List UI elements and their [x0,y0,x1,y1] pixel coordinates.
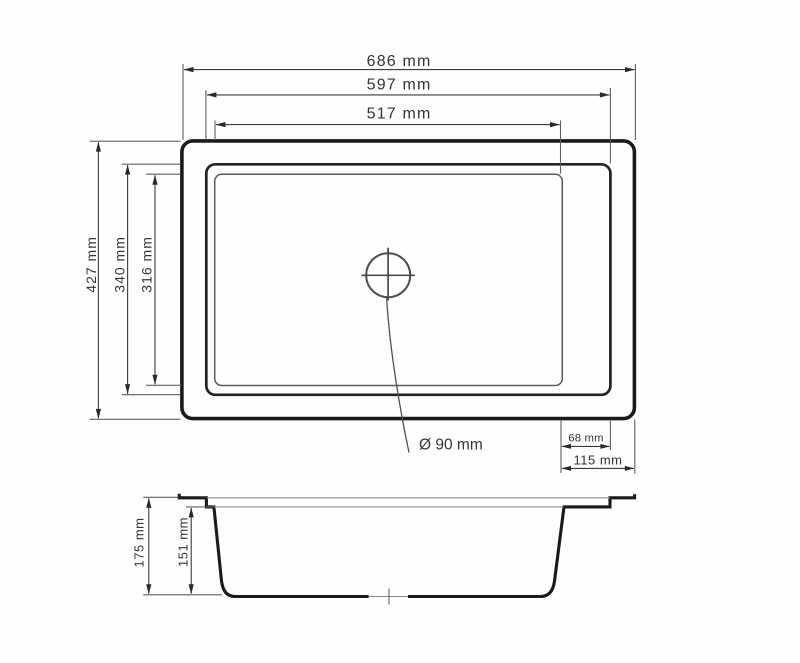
svg-text:597 mm: 597 mm [367,77,432,94]
svg-text:340 mm: 340 mm [111,236,127,293]
svg-text:686 mm: 686 mm [367,53,432,70]
svg-text:517 mm: 517 mm [367,106,432,123]
svg-text:175 mm: 175 mm [131,518,146,568]
svg-text:151 mm: 151 mm [176,517,191,567]
svg-text:316 mm: 316 mm [139,236,155,293]
svg-text:427 mm: 427 mm [83,236,99,293]
svg-text:68 mm: 68 mm [568,432,604,444]
svg-text:115 mm: 115 mm [574,453,623,468]
svg-text:Ø 90 mm: Ø 90 mm [419,436,483,453]
